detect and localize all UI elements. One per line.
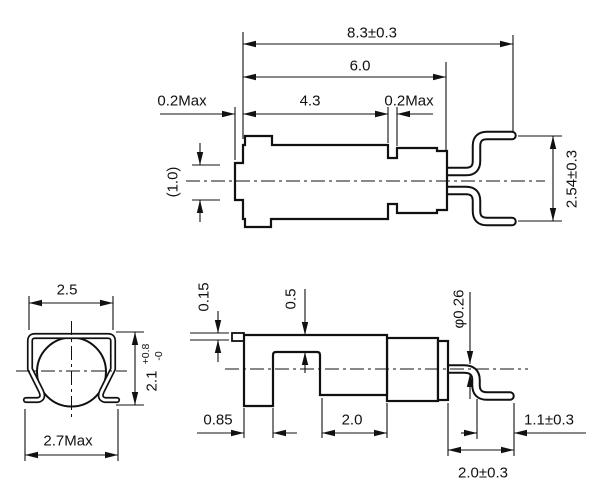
dim-can-length: 4.3 [300,93,321,110]
dim-foot-length: 0.85 [203,412,232,429]
view-top-side: 8.3±0.3 6.0 4.3 0.2Max 0.2Max (1.0) 2.54… [157,25,580,228]
dim-clip-top-width: 2.5 [57,282,78,299]
dim-lead-tip-length: 1.1±0.3 [524,412,574,429]
dim-gap-left: 0.2Max [157,93,207,110]
dim-step-depth: 0.5 [283,289,300,310]
dim-overall-length: 8.3±0.3 [347,25,397,42]
holder-end-ring [438,341,448,400]
dim-clip-height-tol-plus: +0.8 [140,343,152,364]
dim-clip-height-group: 2.1 +0.8 -0 [140,343,165,391]
dim-gap-right: 0.2Max [384,93,434,110]
dim-clip-height-tol-minus: -0 [153,351,165,360]
holder-side-outline [244,335,387,406]
technical-drawing: 8.3±0.3 6.0 4.3 0.2Max 0.2Max (1.0) 2.54… [0,0,604,499]
grip-tab [232,333,244,341]
dim-window-length: 2.0 [342,412,363,429]
dim-lead-run-length: 2.0±0.3 [458,465,508,482]
engineering-drawing-page: 8.3±0.3 6.0 4.3 0.2Max 0.2Max (1.0) 2.54… [0,0,604,499]
dim-lead-diameter: φ0.26 [451,290,468,329]
dim-lead-pitch: 2.54±0.3 [564,150,581,208]
dim-clip-overall-width: 2.7Max [43,433,93,450]
dim-stem-width: (1.0) [165,167,182,198]
dim-holder-length: 6.0 [350,58,371,75]
dim-tab-thickness: 0.15 [196,282,213,311]
view-end: 2.5 2.1 +0.8 -0 2.7Max [16,282,165,462]
view-bottom-side: 0.15 0.5 φ0.26 0.85 2.0 1.1±0.3 2.0±0.3 [190,282,586,481]
dim-clip-height: 2.1 [144,371,161,392]
